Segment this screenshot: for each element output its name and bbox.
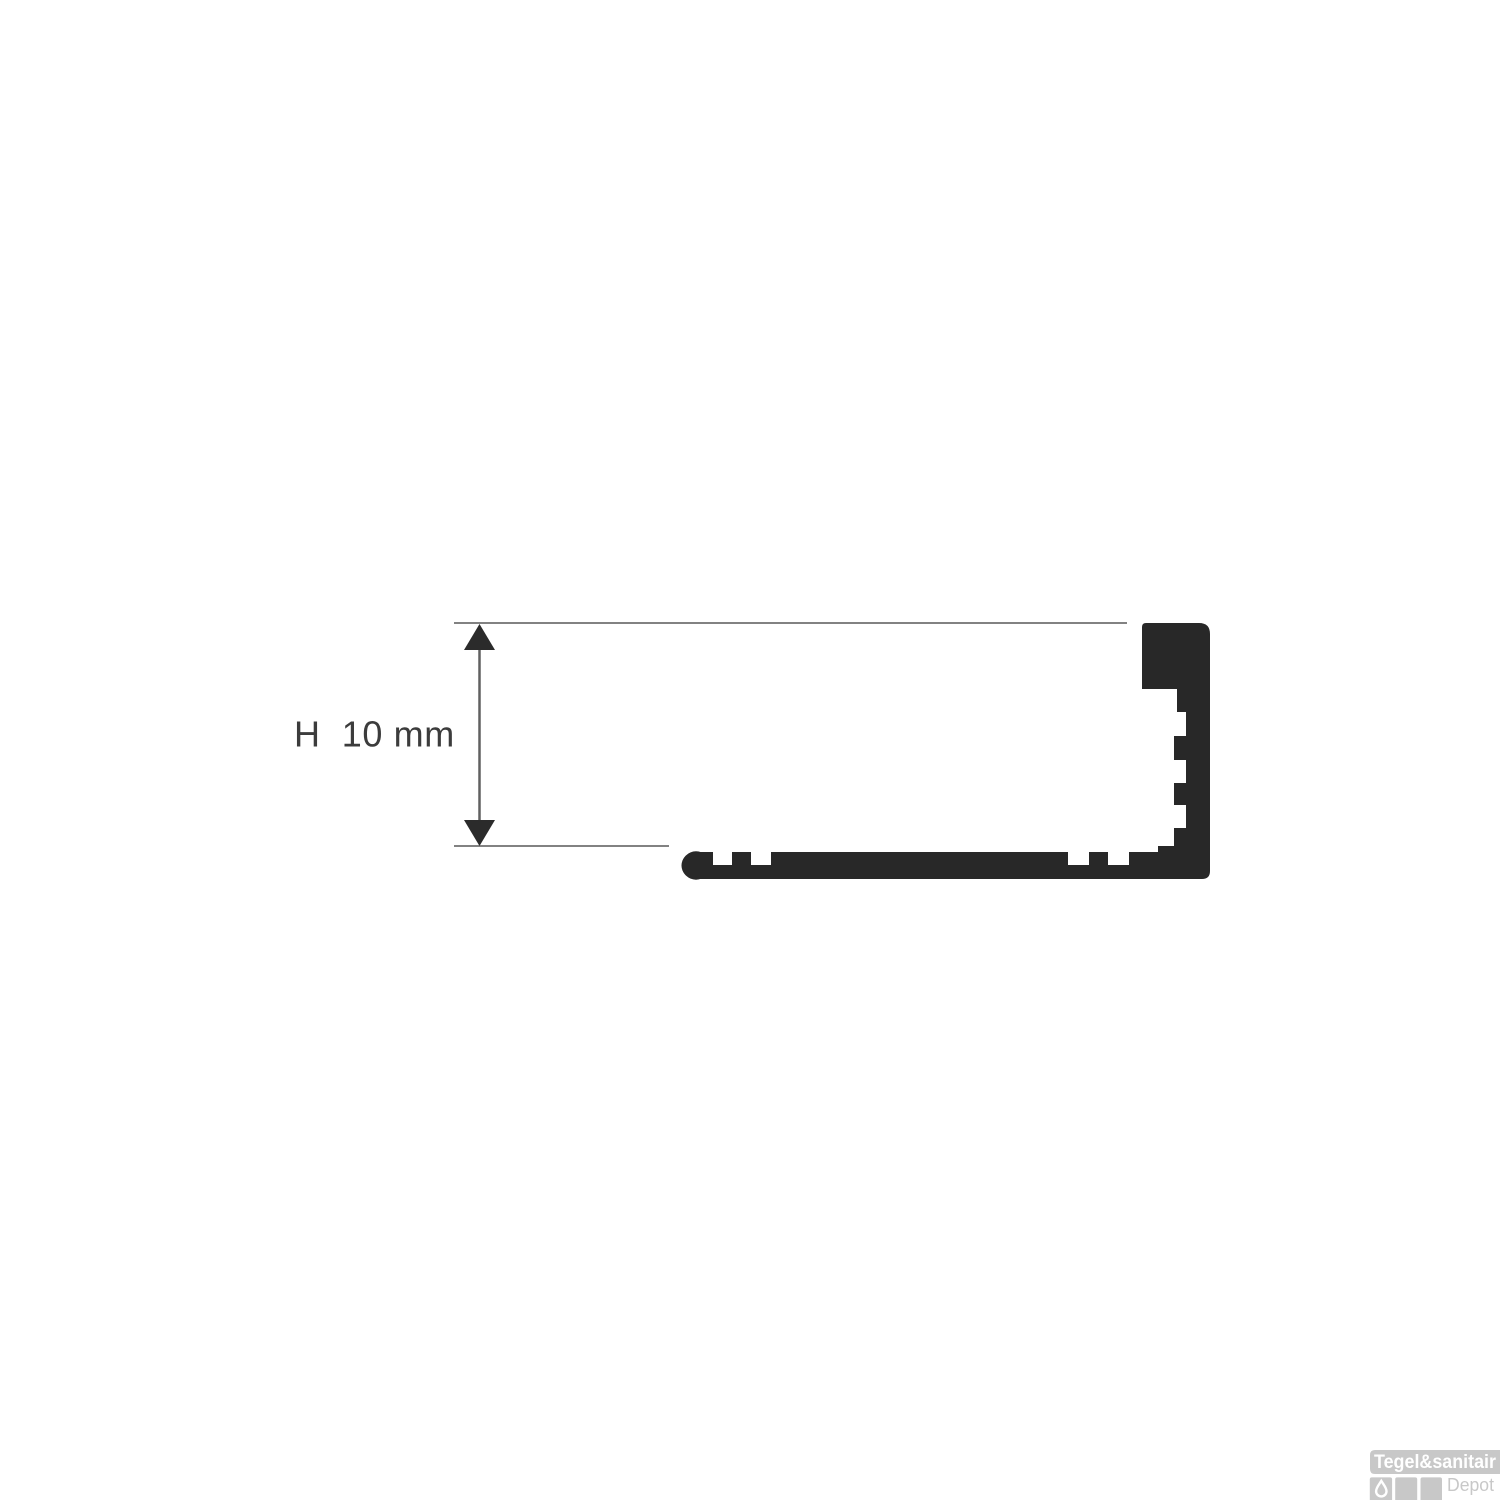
svg-text:Tegel&sanitair: Tegel&sanitair (1374, 1452, 1497, 1473)
svg-text:Depot: Depot (1447, 1475, 1494, 1495)
svg-text:H 10 mm: H 10 mm (294, 714, 455, 755)
